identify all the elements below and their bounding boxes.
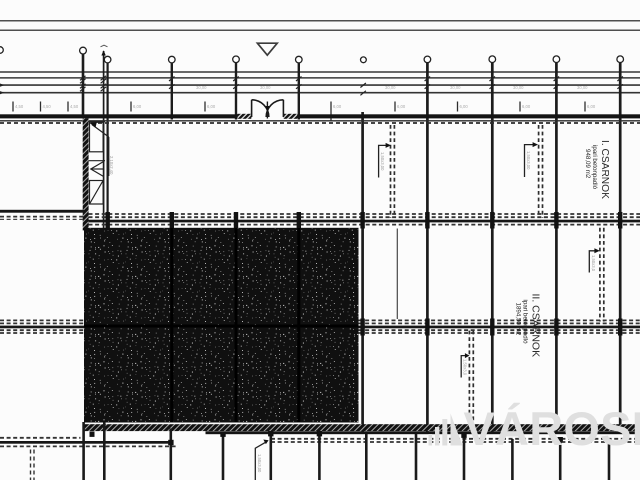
svg-text:1894,50 m2: 1894,50 m2 [515,303,522,336]
svg-text:1,50x3,00: 1,50x3,00 [526,151,531,170]
svg-text:30,00: 30,00 [513,85,524,90]
svg-text:1,50x3,0: 1,50x3,0 [591,255,596,272]
svg-text:6,00: 6,00 [333,104,342,109]
svg-text:6,00: 6,00 [587,104,596,109]
svg-text:948,09 m2: 948,09 m2 [584,149,591,179]
svg-text:6,00: 6,00 [207,104,216,109]
svg-text:30,00: 30,00 [577,85,588,90]
svg-text:4,50: 4,50 [15,104,24,109]
svg-text:ipari betonpadló: ipari betonpadló [522,300,529,345]
svg-text:30,00: 30,00 [385,85,396,90]
svg-text:30,00: 30,00 [450,85,461,90]
svg-text:1,50x3,00: 1,50x3,00 [257,454,262,473]
svg-text:1,50x3,00: 1,50x3,00 [380,152,385,171]
svg-text:6,00: 6,00 [522,104,531,109]
svg-text:II. CSARNOK: II. CSARNOK [530,294,542,358]
svg-text:6,00: 6,00 [460,104,469,109]
svg-text:4,50: 4,50 [70,104,79,109]
svg-text:2,10x2,40: 2,10x2,40 [109,156,114,175]
svg-text:I. CSARNOK: I. CSARNOK [599,140,610,199]
svg-text:VÁROSI: VÁROSI [464,402,640,455]
svg-text:30,00: 30,00 [196,85,207,90]
svg-text:4,50: 4,50 [43,104,52,109]
svg-text:6,00: 6,00 [133,104,142,109]
svg-text:1,50x3,0: 1,50x3,0 [463,359,468,376]
svg-text:30,00: 30,00 [260,85,271,90]
svg-text:6,00: 6,00 [397,104,406,109]
